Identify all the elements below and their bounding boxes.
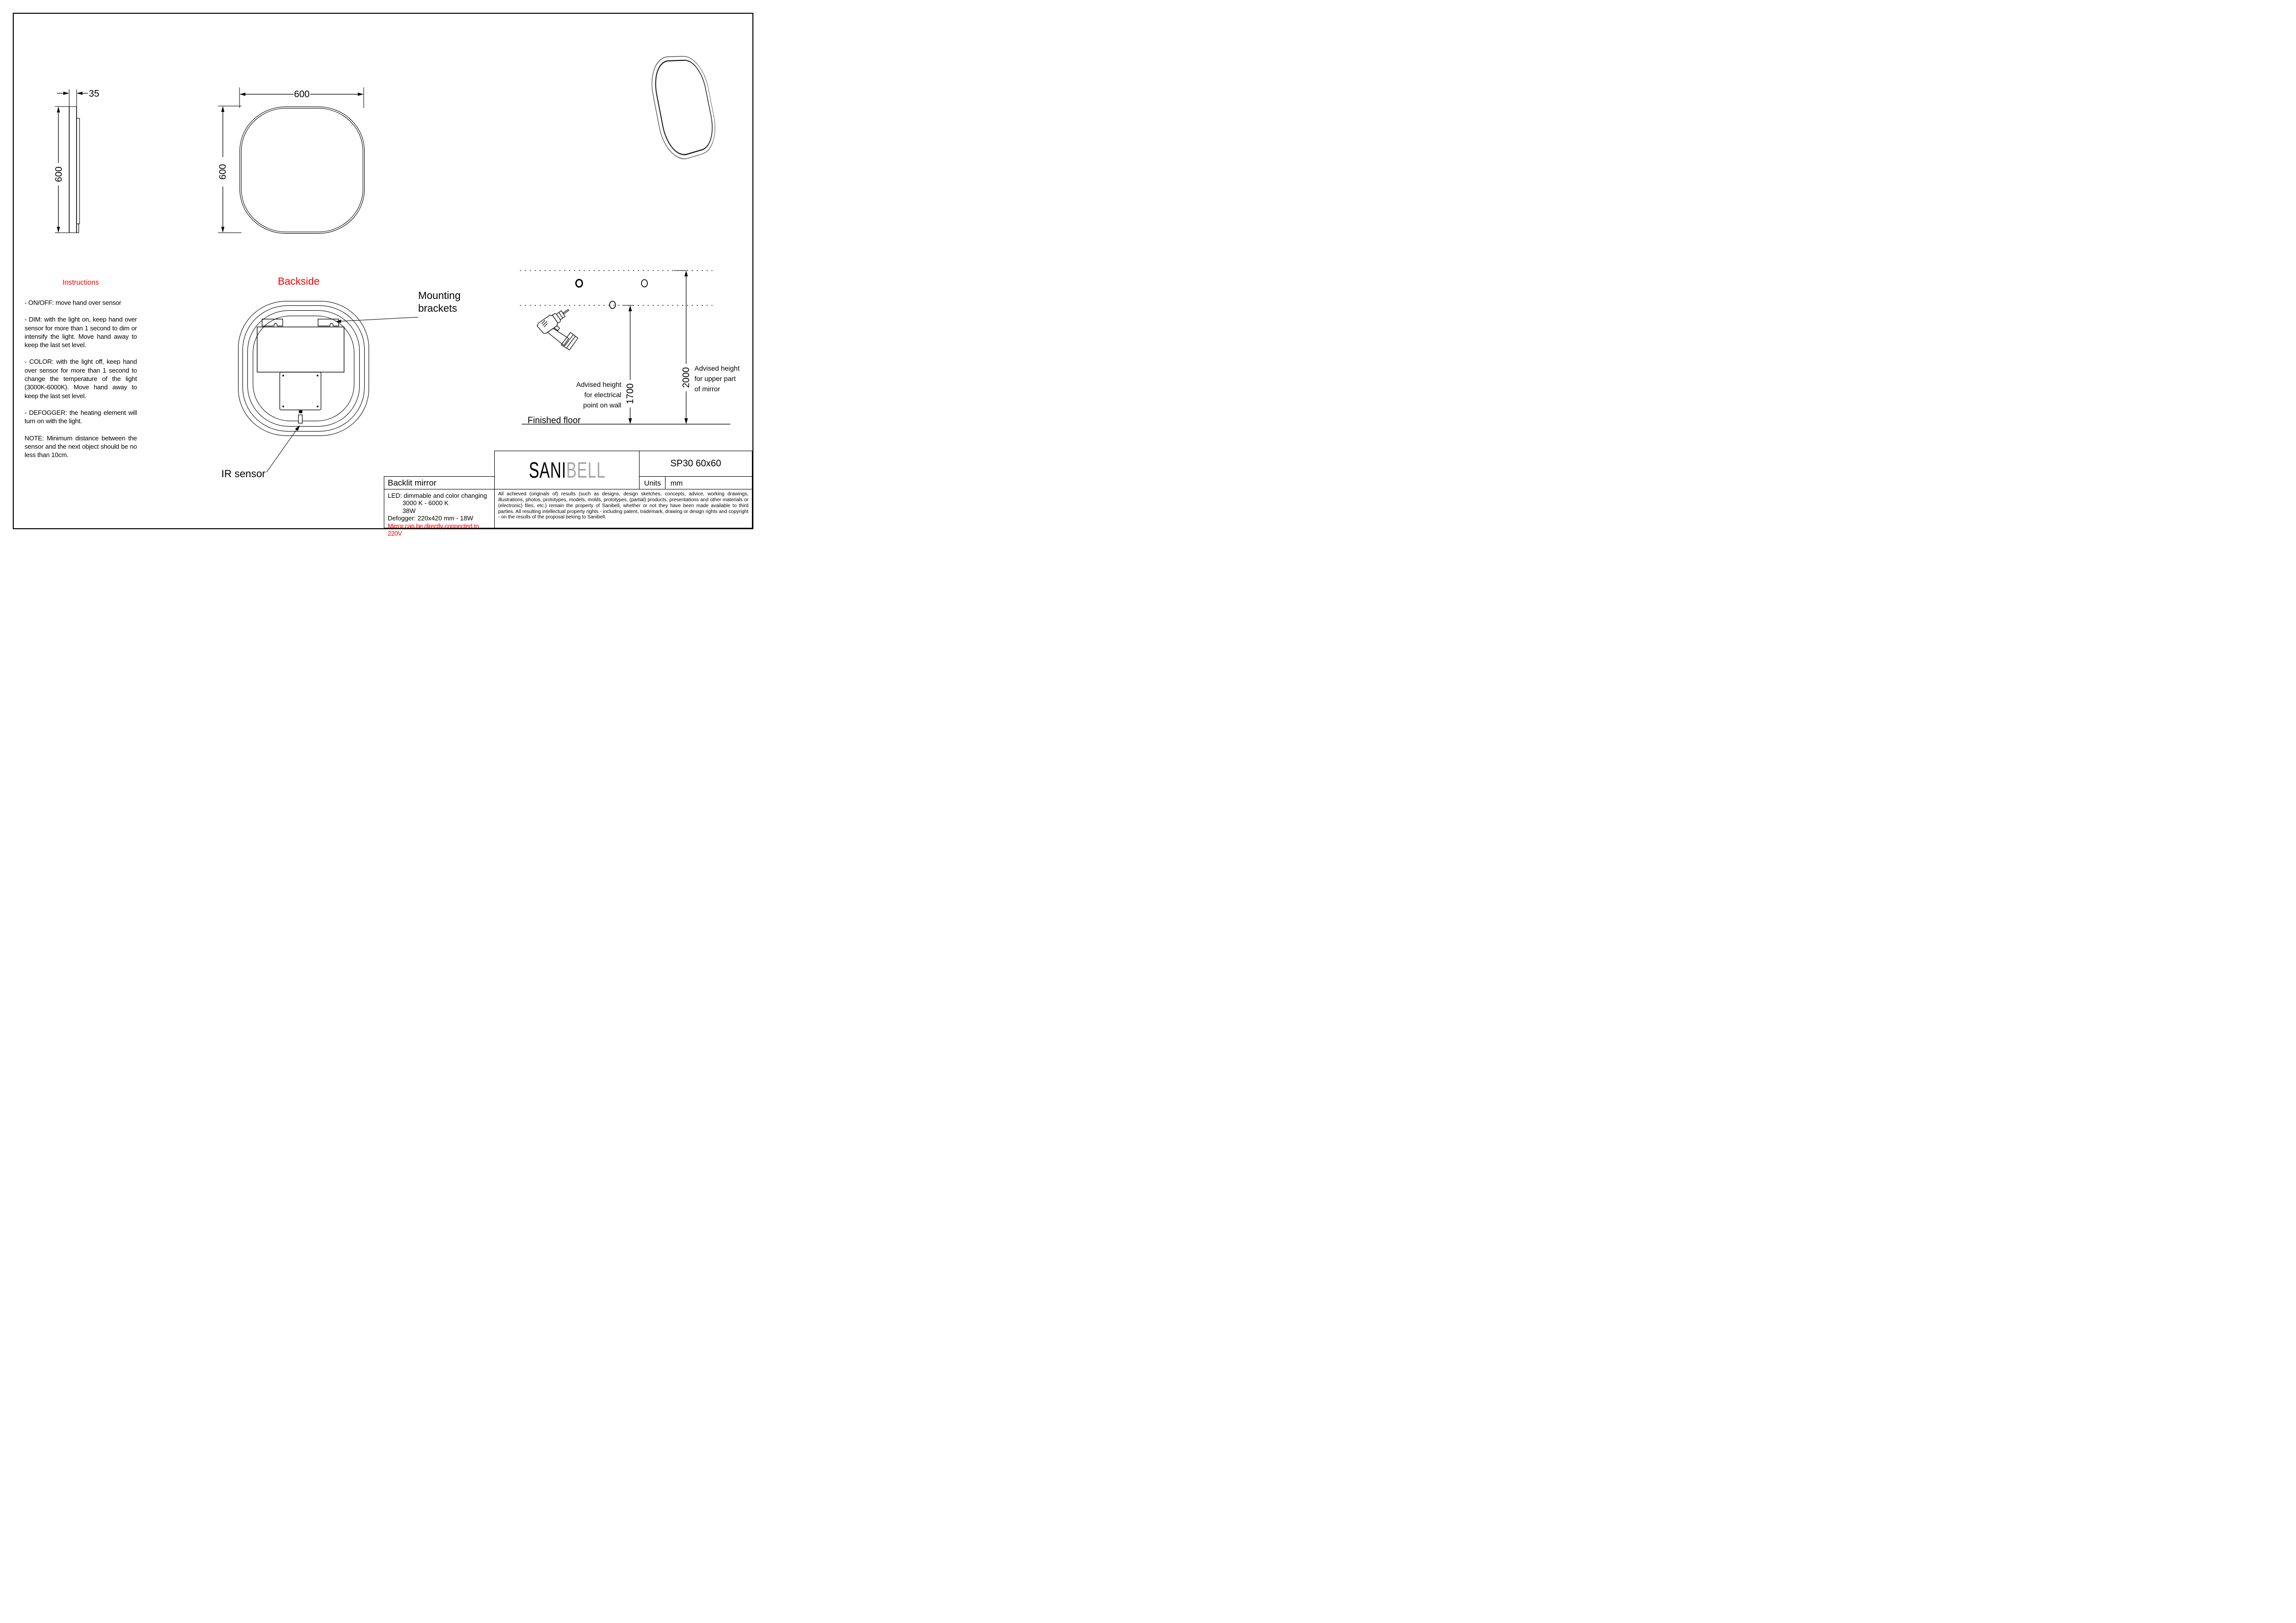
mounting-label-line1: Mounting (418, 290, 460, 302)
led-panel (257, 327, 344, 372)
spec-kelvin: 3000 K - 6000 K (388, 499, 492, 507)
instructions-block: Instructions - ON/OFF: move hand over se… (25, 279, 137, 467)
logo-cell: SANIBELL (494, 451, 640, 490)
spec-warning: Mirror can be directly connected to 220V (388, 522, 492, 538)
front-width-dim: 600 (294, 89, 310, 100)
mirror-label-line3: of mirror (694, 384, 740, 394)
units-label-cell: Units (639, 476, 666, 490)
electrical-label-line1: Advised height (548, 379, 621, 390)
dim-1700: 1700 (625, 383, 636, 404)
units-value-cell: mm (665, 476, 752, 490)
spec-watt: 38W (388, 507, 492, 514)
logo-sani: SANI (529, 458, 566, 483)
instruction-dim: - DIM: with the light on, keep hand over… (25, 315, 137, 349)
spec-led: LED: dimmable and color changing (388, 492, 492, 499)
instruction-color: - COLOR: with the light off, keep hand o… (25, 357, 137, 400)
logo-bell: BELL (566, 458, 606, 483)
side-depth-dim: 35 (89, 89, 99, 99)
mirror-height-label: Advised height for upper part of mirror (694, 363, 740, 394)
electrical-label-line2: for electrical (548, 390, 621, 400)
electrical-height-label: Advised height for electrical point on w… (548, 379, 621, 410)
instruction-defogger: - DEFOGGER: the heating element will tur… (25, 408, 137, 426)
electrical-label-line3: point on wall (548, 400, 621, 410)
spec-defogger: Defogger: 220x420 mm - 18W (388, 514, 492, 522)
product-cell: Backlit mirror (384, 476, 495, 490)
specs-cell: LED: dimmable and color changing 3000 K … (384, 489, 495, 528)
mounting-label-line2: brackets (418, 302, 460, 315)
instructions-title: Instructions (25, 279, 137, 287)
ir-sensor-stub (298, 415, 302, 423)
mirror-label-line1: Advised height (694, 363, 740, 374)
cable-gland (299, 410, 302, 413)
product-name: Backlit mirror (388, 478, 436, 488)
model-cell: SP30 60x60 (639, 451, 752, 477)
side-view-drawing: 35 600 (39, 83, 113, 241)
legal-cell: All achieved (originals of) results (suc… (494, 489, 752, 528)
perspective-view (649, 55, 721, 156)
model-number: SP30 60x60 (670, 459, 721, 469)
ir-sensor-label: IR sensor (221, 468, 266, 481)
units-value: mm (670, 479, 683, 487)
drill-icon (536, 305, 588, 357)
mirror-label-line2: for upper part (694, 374, 740, 384)
instruction-note: NOTE: Minimum distance between the senso… (25, 434, 137, 460)
drill-hole (576, 280, 583, 287)
mounting-brackets-label: Mounting brackets (418, 290, 460, 315)
sanibell-logo: SANIBELL (529, 458, 605, 483)
instruction-onoff: - ON/OFF: move hand over sensor (25, 298, 137, 307)
front-height-dim: 600 (218, 164, 228, 180)
hole-lower (610, 301, 615, 309)
mounting-bracket-right (318, 319, 339, 326)
dim-2000: 2000 (681, 367, 692, 388)
side-height-dim: 600 (54, 166, 64, 182)
front-view-dimensions: 600 600 (216, 79, 378, 245)
hole-upper (641, 280, 647, 287)
mounting-bracket-left (262, 319, 283, 326)
units-label: Units (644, 479, 661, 487)
legal-text: All achieved (originals of) results (suc… (498, 491, 748, 520)
defogger-pad (280, 372, 321, 410)
drawing-sheet: { "instructions": { "title": "Instructio… (0, 0, 765, 541)
finished-floor-label: Finished floor (528, 414, 581, 427)
